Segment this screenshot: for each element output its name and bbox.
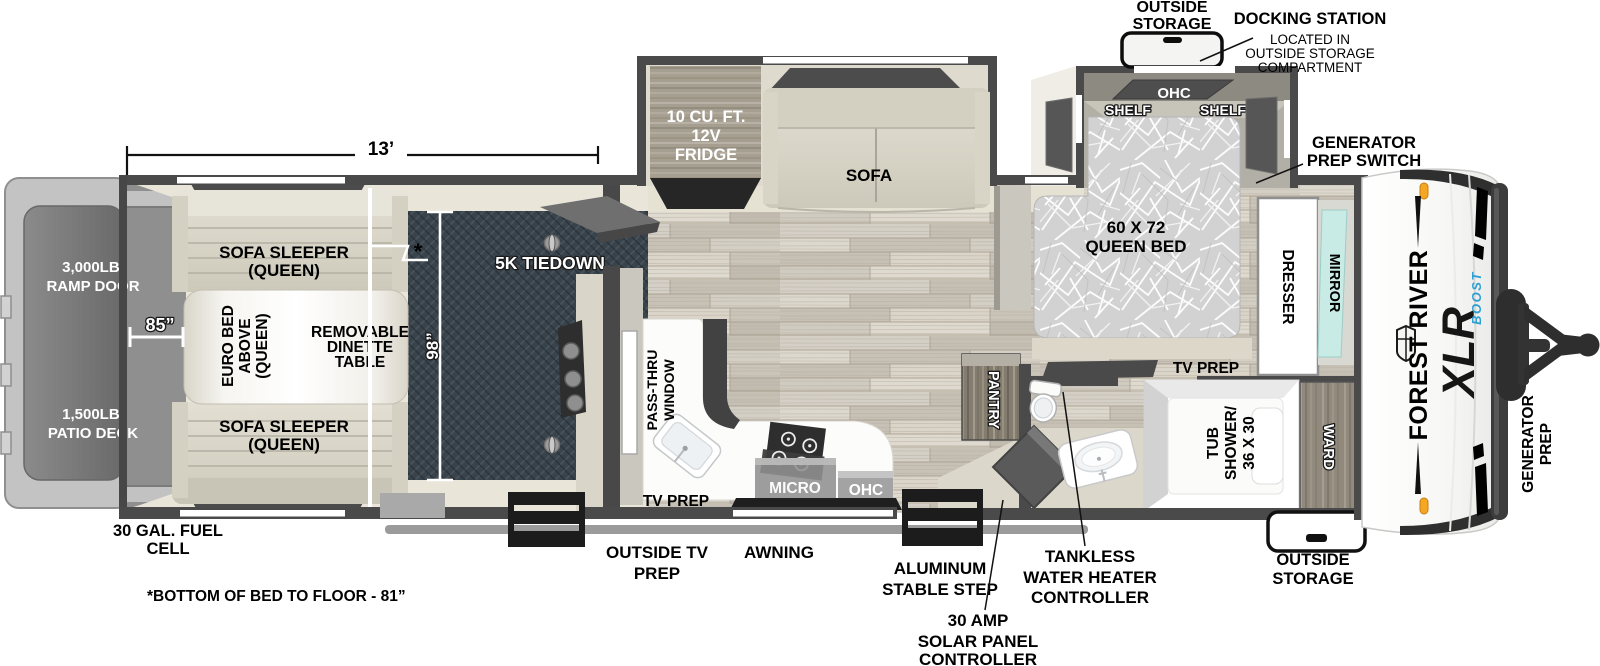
- svg-text:CELL: CELL: [146, 540, 189, 558]
- svg-text:COMPARTMENT: COMPARTMENT: [1258, 60, 1363, 75]
- svg-text:STORAGE: STORAGE: [1133, 16, 1212, 33]
- svg-text:BOOST: BOOST: [1469, 271, 1484, 325]
- svg-text:ABOVE: ABOVE: [237, 318, 254, 373]
- svg-text:SOFA: SOFA: [846, 166, 892, 185]
- svg-text:SOLAR PANEL: SOLAR PANEL: [918, 632, 1039, 651]
- svg-text:LOCATED IN: LOCATED IN: [1270, 32, 1350, 47]
- svg-text:WARD: WARD: [1320, 424, 1337, 470]
- svg-text:WINDOW: WINDOW: [661, 359, 677, 421]
- svg-text:ALUMINUM: ALUMINUM: [894, 559, 987, 578]
- svg-text:(QUEEN): (QUEEN): [248, 261, 320, 280]
- svg-text:OUTSIDE: OUTSIDE: [1276, 551, 1349, 569]
- svg-text:TABLE: TABLE: [335, 354, 386, 371]
- svg-text:MICRO: MICRO: [769, 480, 821, 497]
- svg-text:SOFA SLEEPER: SOFA SLEEPER: [219, 243, 349, 262]
- svg-text:DOCKING STATION: DOCKING STATION: [1234, 10, 1386, 28]
- svg-text:WATER HEATER: WATER HEATER: [1023, 568, 1156, 587]
- svg-text:DRESSER: DRESSER: [1279, 250, 1296, 325]
- svg-text:30 AMP: 30 AMP: [948, 611, 1009, 630]
- svg-text:SHELF: SHELF: [1105, 102, 1151, 118]
- svg-text:85”: 85”: [145, 315, 174, 335]
- svg-text:MIRROR: MIRROR: [1326, 254, 1342, 313]
- svg-text:10 CU. FT.: 10 CU. FT.: [667, 108, 746, 126]
- svg-text:FOREST RIVER: FOREST RIVER: [1405, 250, 1433, 441]
- svg-text:CONTROLLER: CONTROLLER: [919, 650, 1037, 666]
- svg-text:STABLE STEP: STABLE STEP: [882, 580, 998, 599]
- svg-text:(QUEEN): (QUEEN): [254, 313, 271, 378]
- svg-text:12V: 12V: [691, 127, 720, 145]
- svg-text:TANKLESS: TANKLESS: [1045, 547, 1135, 566]
- svg-text:36 X 30: 36 X 30: [1241, 416, 1258, 469]
- svg-text:30 GAL. FUEL: 30 GAL. FUEL: [113, 522, 223, 540]
- svg-text:EURO BED: EURO BED: [220, 305, 237, 387]
- svg-text:SOFA SLEEPER: SOFA SLEEPER: [219, 417, 349, 436]
- svg-text:OUTSIDE STORAGE: OUTSIDE STORAGE: [1245, 46, 1375, 61]
- svg-text:*BOTTOM OF BED TO FLOOR - 81”: *BOTTOM OF BED TO FLOOR - 81”: [147, 588, 406, 605]
- svg-text:CONTROLLER: CONTROLLER: [1031, 588, 1149, 607]
- svg-text:QUEEN BED: QUEEN BED: [1085, 237, 1186, 256]
- svg-text:STORAGE: STORAGE: [1272, 570, 1353, 588]
- svg-text:OUTSIDE TV: OUTSIDE TV: [606, 543, 709, 562]
- svg-text:GENERATOR: GENERATOR: [1312, 134, 1416, 152]
- svg-text:(QUEEN): (QUEEN): [248, 435, 320, 454]
- svg-text:OHC: OHC: [849, 482, 883, 499]
- svg-text:TV PREP: TV PREP: [1173, 360, 1239, 377]
- svg-text:SHOWER/: SHOWER/: [1223, 405, 1240, 480]
- svg-text:FRIDGE: FRIDGE: [675, 146, 737, 164]
- svg-text:OUTSIDE: OUTSIDE: [1136, 0, 1207, 16]
- svg-text:PANTRY: PANTRY: [985, 371, 1001, 429]
- svg-text:PREP SWITCH: PREP SWITCH: [1307, 152, 1421, 170]
- svg-text:PREP: PREP: [1538, 423, 1555, 465]
- svg-text:60 X 72: 60 X 72: [1107, 218, 1166, 237]
- svg-text:1,500LB.: 1,500LB.: [62, 406, 124, 423]
- svg-text:5K TIEDOWN: 5K TIEDOWN: [495, 253, 605, 273]
- svg-text:TUB: TUB: [1205, 427, 1222, 459]
- svg-text:PASS-THRU: PASS-THRU: [644, 350, 660, 431]
- svg-text:*: *: [414, 239, 423, 264]
- svg-text:OHC: OHC: [1157, 85, 1191, 102]
- svg-text:13’: 13’: [368, 139, 394, 160]
- svg-text:GENERATOR: GENERATOR: [1520, 395, 1537, 493]
- svg-text:3,000LB.: 3,000LB.: [62, 259, 124, 276]
- svg-text:PREP: PREP: [634, 564, 680, 583]
- svg-text:AWNING: AWNING: [744, 543, 814, 562]
- svg-text:SHELF: SHELF: [1200, 102, 1246, 118]
- svg-text:98”: 98”: [423, 332, 442, 359]
